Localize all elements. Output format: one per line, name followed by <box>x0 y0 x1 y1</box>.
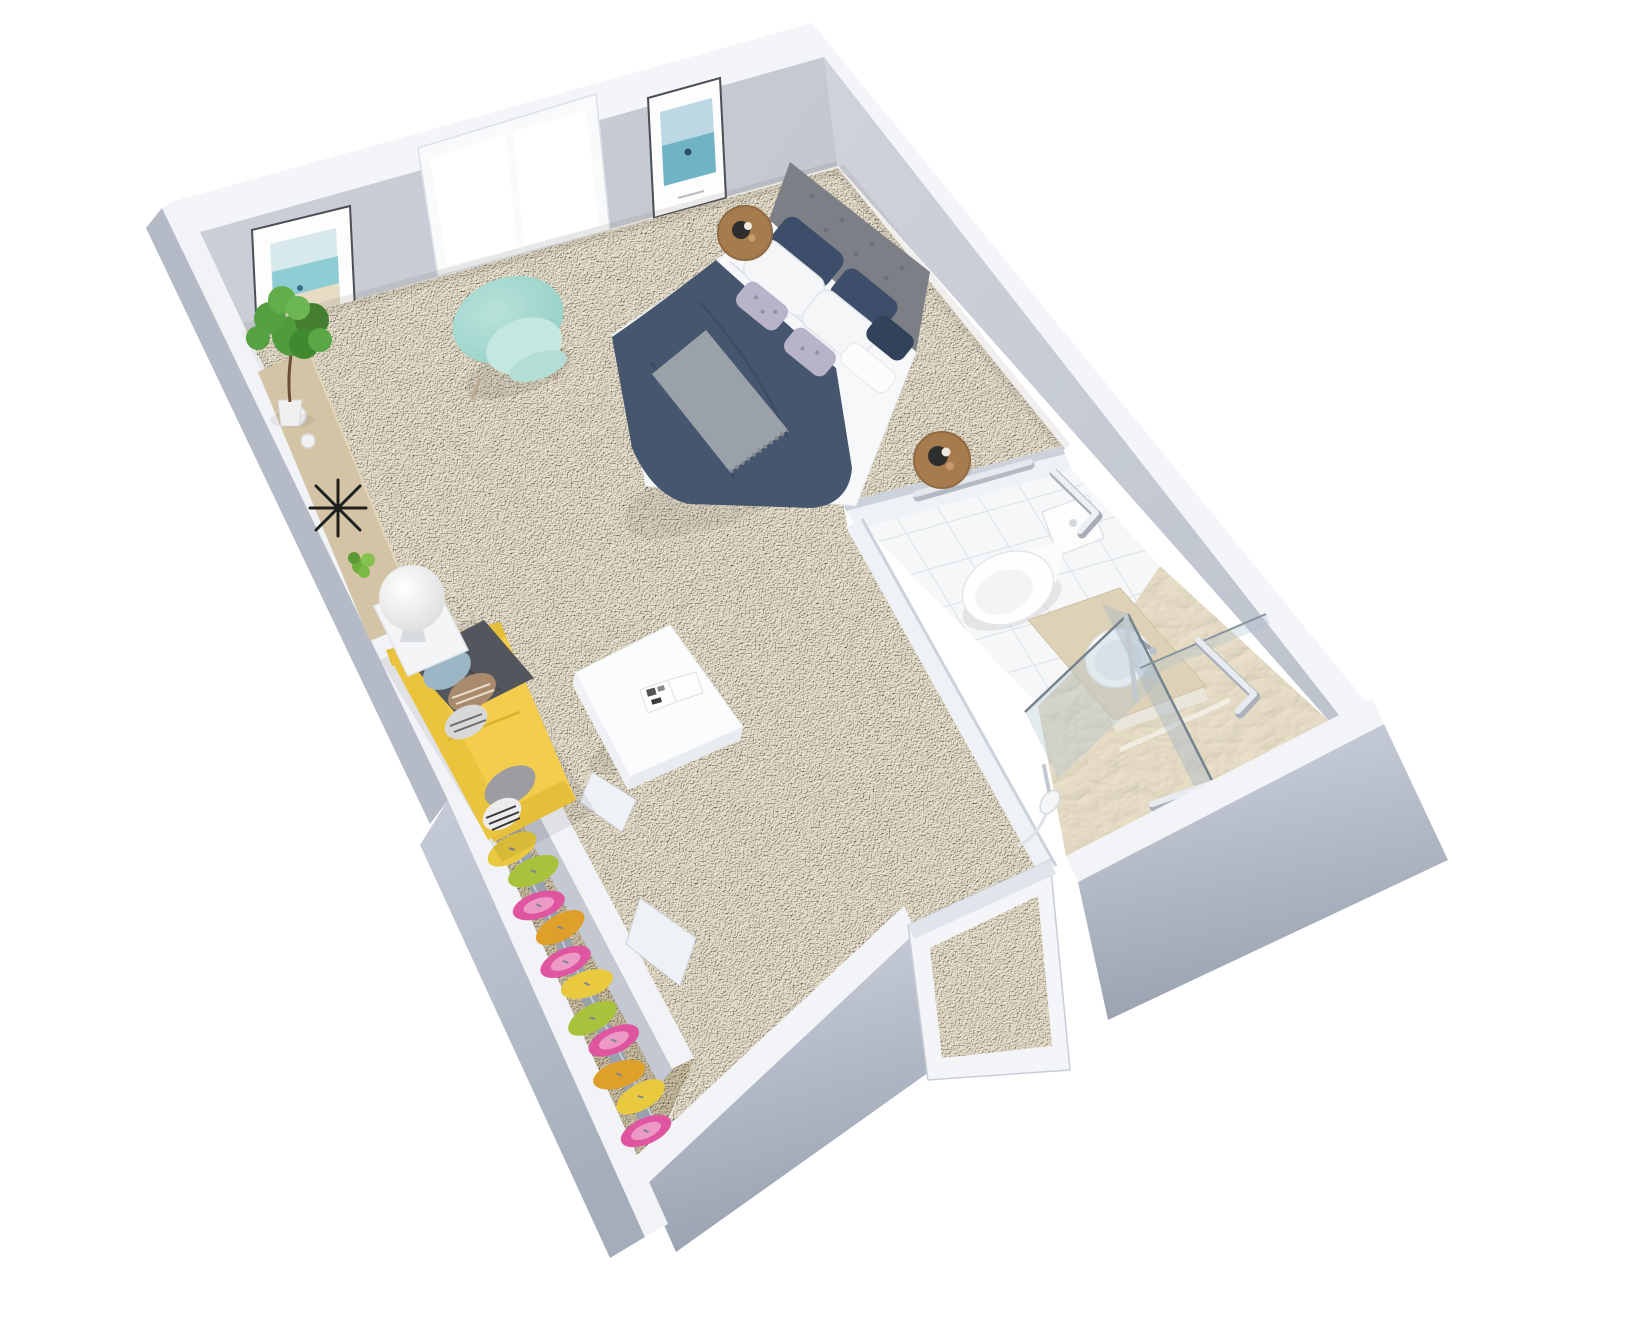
plant-pot <box>278 400 302 426</box>
window-pane-right <box>513 110 599 245</box>
faucet-base <box>1149 647 1157 655</box>
nightstand-right-candle <box>942 448 951 457</box>
nightstand-right-decor <box>946 462 954 470</box>
toilet-flush-button <box>1069 519 1077 527</box>
lamp-sphere <box>379 565 445 631</box>
nightstand-left <box>718 206 773 260</box>
nightstand-right <box>914 432 972 488</box>
nightstand-left-candle <box>744 222 752 230</box>
art-left-boat <box>297 285 303 291</box>
art-right-boat <box>685 149 692 156</box>
nightstand-left-decor <box>749 235 756 242</box>
floor-plan-svg: Isometric 3D rendering of a furnished st… <box>0 0 1650 1320</box>
floor-plan-render: Isometric 3D rendering of a furnished st… <box>0 0 1650 1320</box>
vase-small <box>301 434 315 448</box>
starburst-clock <box>310 480 366 536</box>
